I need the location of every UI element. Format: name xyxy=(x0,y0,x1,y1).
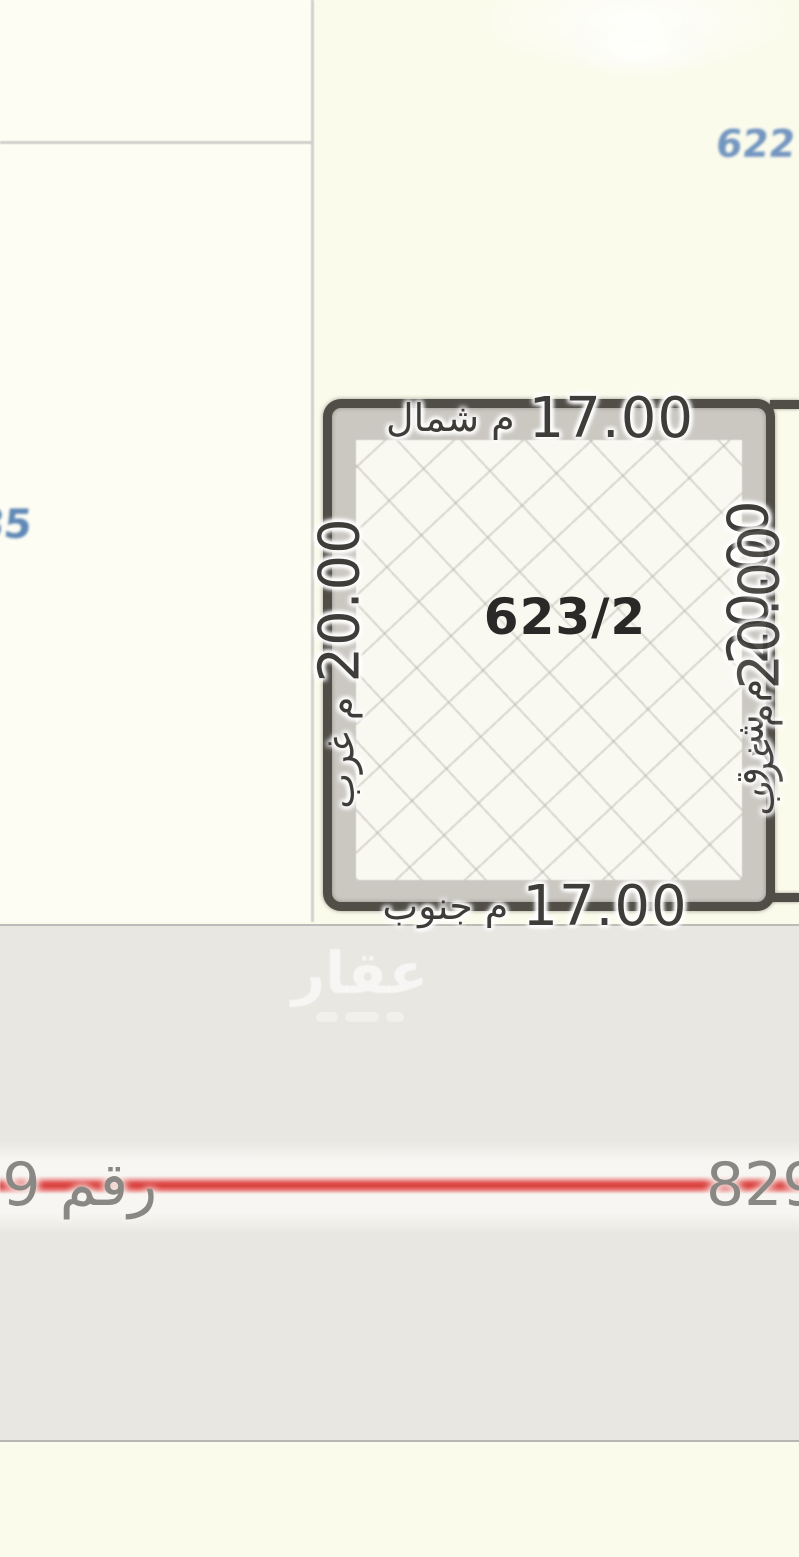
dimension-west-word: م غرب xyxy=(318,697,362,809)
dimension-west: م غرب 20.00 xyxy=(308,517,373,809)
edge-partial-parcel-number: 85 xyxy=(0,502,34,548)
street-number-label-left: رقم 829 xyxy=(0,1146,157,1224)
parcel-623-2 xyxy=(323,399,775,911)
dimension-east-overlap-value: 20.00 xyxy=(728,524,793,689)
dimension-west-value: 20.00 xyxy=(308,517,373,682)
dimension-north-word: م شمال xyxy=(386,396,515,440)
neighbor-parcel-number: 622 xyxy=(714,122,798,166)
parcel-boundary-line-horizontal xyxy=(0,141,313,144)
dimension-east-overlap-word: م غرب xyxy=(738,704,782,816)
dimension-south: م جنوب 17.00 xyxy=(315,868,755,944)
watermark-tagline xyxy=(312,1012,408,1024)
dimension-east-neighbor-overlap: م غرب 20.00 xyxy=(728,524,793,816)
parcel-hatch-fill xyxy=(356,440,742,880)
street-number-label-right: رقم 829 xyxy=(706,1146,799,1224)
cadastral-map[interactable]: 622 85 رقم 829 رقم 829 عقار 623/2 م شمال… xyxy=(0,0,799,1557)
parcel-number: 623/2 xyxy=(465,588,665,646)
dimension-south-value: 17.00 xyxy=(522,874,687,939)
dimension-north: م شمال 17.00 xyxy=(320,380,760,456)
south-boundary-extension xyxy=(770,893,799,902)
aqar-watermark: عقار xyxy=(285,942,435,1004)
faded-boundary-ghost xyxy=(560,20,720,80)
dimension-north-value: 17.00 xyxy=(529,386,694,451)
dimension-south-word: م جنوب xyxy=(382,884,508,928)
west-neighbor-parcel xyxy=(0,0,311,922)
north-boundary-extension xyxy=(770,400,799,409)
